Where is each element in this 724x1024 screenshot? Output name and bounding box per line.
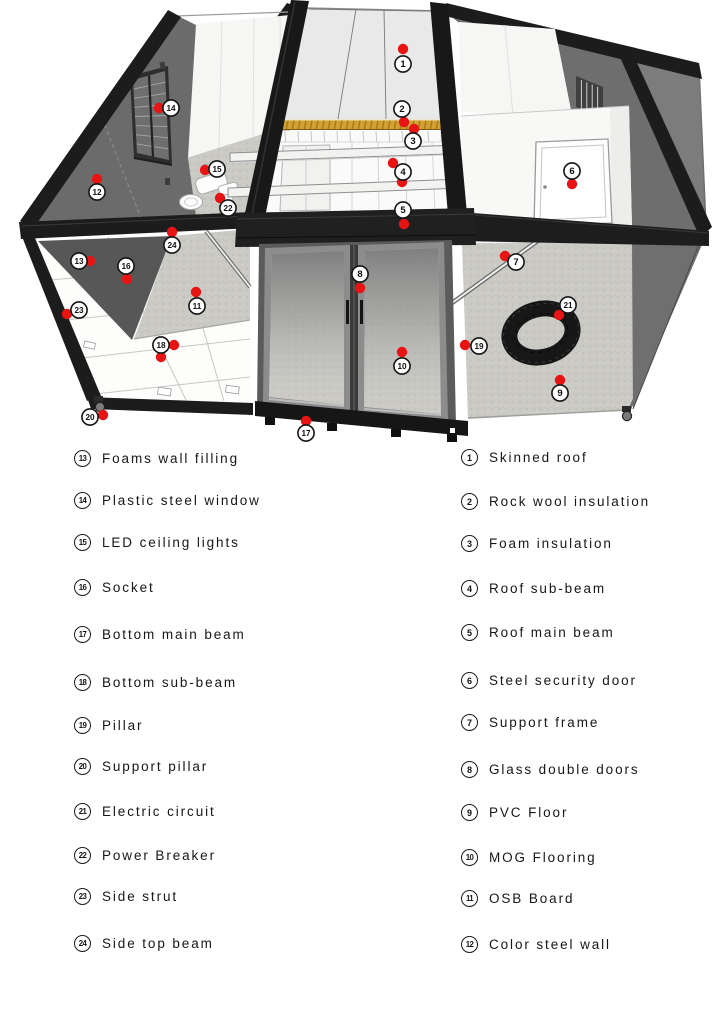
legend-label: Electric circuit (102, 804, 216, 819)
legend-label: Pillar (102, 718, 143, 733)
legend-label: Side strut (102, 889, 178, 904)
legend-number-badge: 6 (461, 672, 478, 689)
legend-number-badge: 17 (74, 626, 91, 643)
legend-item-5: 5Roof main beam (461, 624, 615, 641)
legend-label: Support pillar (102, 759, 208, 774)
legend-number-badge: 20 (74, 758, 91, 775)
container-house-diagram-page: 123456789101112131415161718192021222324 … (0, 0, 724, 1024)
legend-number-badge: 13 (74, 450, 91, 467)
legend-number-badge: 10 (461, 849, 478, 866)
legend-label: Skinned roof (489, 450, 588, 465)
legend-number-badge: 3 (461, 535, 478, 552)
legend-number-badge: 1 (461, 449, 478, 466)
legend-label: OSB Board (489, 891, 574, 906)
legend-label: Roof main beam (489, 625, 615, 640)
legend-item-9: 9PVC Floor (461, 804, 568, 821)
legend-item-7: 7Support frame (461, 714, 599, 731)
legend-label: Side top beam (102, 936, 214, 951)
legend-number-badge: 18 (74, 674, 91, 691)
legend-label: MOG Flooring (489, 850, 597, 865)
legend-number-badge: 21 (74, 803, 91, 820)
legend-label: PVC Floor (489, 805, 568, 820)
legend-item-16: 16Socket (74, 579, 155, 596)
legend: 13Foams wall filling14Plastic steel wind… (0, 0, 724, 1024)
legend-item-21: 21Electric circuit (74, 803, 216, 820)
legend-number-badge: 22 (74, 847, 91, 864)
legend-item-19: 19Pillar (74, 717, 143, 734)
legend-label: Foam insulation (489, 536, 613, 551)
legend-item-2: 2Rock wool insulation (461, 493, 650, 510)
legend-number-badge: 14 (74, 492, 91, 509)
legend-item-17: 17Bottom main beam (74, 626, 246, 643)
legend-number-badge: 4 (461, 580, 478, 597)
legend-label: Foams wall filling (102, 451, 239, 466)
legend-item-12: 12Color steel wall (461, 936, 611, 953)
legend-label: Plastic steel window (102, 493, 261, 508)
legend-item-15: 15LED ceiling lights (74, 534, 240, 551)
legend-label: Power Breaker (102, 848, 216, 863)
legend-item-4: 4Roof sub-beam (461, 580, 606, 597)
legend-number-badge: 19 (74, 717, 91, 734)
legend-label: Color steel wall (489, 937, 611, 952)
legend-item-3: 3Foam insulation (461, 535, 613, 552)
legend-number-badge: 5 (461, 624, 478, 641)
legend-item-13: 13Foams wall filling (74, 450, 239, 467)
legend-item-20: 20Support pillar (74, 758, 208, 775)
legend-number-badge: 24 (74, 935, 91, 952)
legend-number-badge: 16 (74, 579, 91, 596)
legend-number-badge: 7 (461, 714, 478, 731)
legend-label: Bottom main beam (102, 627, 246, 642)
legend-label: Socket (102, 580, 155, 595)
legend-label: Support frame (489, 715, 599, 730)
legend-item-14: 14Plastic steel window (74, 492, 261, 509)
legend-number-badge: 8 (461, 761, 478, 778)
legend-label: Glass double doors (489, 762, 640, 777)
legend-label: LED ceiling lights (102, 535, 240, 550)
legend-item-1: 1Skinned roof (461, 449, 588, 466)
legend-item-11: 11OSB Board (461, 890, 574, 907)
legend-number-badge: 15 (74, 534, 91, 551)
legend-number-badge: 12 (461, 936, 478, 953)
legend-label: Rock wool insulation (489, 494, 650, 509)
legend-number-badge: 23 (74, 888, 91, 905)
legend-label: Bottom sub-beam (102, 675, 237, 690)
legend-item-6: 6Steel security door (461, 672, 637, 689)
legend-number-badge: 2 (461, 493, 478, 510)
legend-number-badge: 11 (461, 890, 478, 907)
legend-item-23: 23Side strut (74, 888, 178, 905)
legend-item-18: 18Bottom sub-beam (74, 674, 237, 691)
legend-item-24: 24Side top beam (74, 935, 214, 952)
legend-item-22: 22Power Breaker (74, 847, 216, 864)
legend-label: Steel security door (489, 673, 637, 688)
legend-label: Roof sub-beam (489, 581, 606, 596)
legend-number-badge: 9 (461, 804, 478, 821)
legend-item-10: 10MOG Flooring (461, 849, 597, 866)
legend-item-8: 8Glass double doors (461, 761, 640, 778)
